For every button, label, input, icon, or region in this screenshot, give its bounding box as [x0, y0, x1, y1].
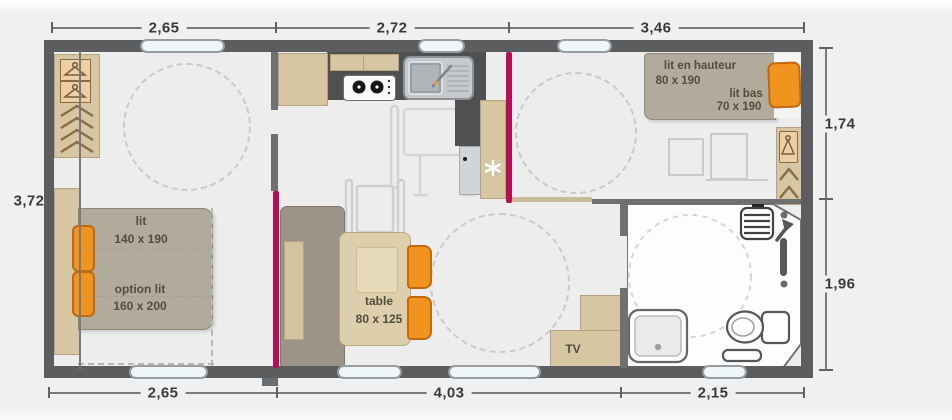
dimension-label: 1,74 [818, 116, 863, 133]
dimension-tick [73, 369, 87, 371]
window [140, 39, 225, 53]
sliding-door [506, 52, 512, 203]
turning-circle-master-bedroom [123, 63, 251, 191]
sofa [280, 206, 345, 370]
chevron-shelf-icon [58, 104, 96, 154]
tv-label: TV [565, 342, 580, 356]
dimension-tick [803, 22, 805, 33]
dimension-label: 2,65 [141, 385, 186, 402]
wall-bathroom [620, 288, 627, 368]
turning-circle-kids-bedroom [515, 72, 637, 194]
desk-and-chair [666, 132, 770, 186]
dimension-tick [276, 387, 278, 398]
sofa-cushion [284, 241, 304, 340]
chair [407, 245, 432, 289]
step-cabinet [580, 295, 622, 332]
bed-fold-line [80, 296, 210, 297]
chevron-shelf-icon [778, 166, 800, 202]
snowflake-icon [484, 159, 502, 177]
cabinet-divider [363, 55, 364, 70]
dimension-label: 4,03 [427, 385, 472, 402]
dimension-label: 1,96 [818, 276, 863, 293]
wall-partition-hall [512, 197, 592, 202]
wardrobe-kids [776, 127, 803, 205]
bunk-top-label: lit en hauteur [664, 60, 736, 72]
turning-circle-living [430, 213, 570, 353]
hanger-icon [779, 131, 798, 163]
radiator-icon [741, 204, 773, 239]
dimension-tick [819, 369, 833, 371]
option-bed-size-label: 160 x 200 [113, 299, 166, 313]
dimension-tick [819, 198, 833, 200]
dimension-tick [51, 22, 53, 33]
pillow-icon [72, 271, 95, 317]
kitchen-tall-cabinet [480, 100, 506, 199]
dimension-label: 2,72 [370, 20, 415, 37]
wall-partition-master [271, 52, 278, 110]
dimension-line-right [825, 48, 827, 370]
option-bed-label: option lit [115, 282, 166, 296]
dimension-tick [803, 387, 805, 398]
table-label: table [365, 294, 393, 308]
dimension-tick [73, 49, 87, 51]
dimension-label: 2,65 [142, 20, 187, 37]
hanger-icon [60, 59, 91, 81]
bed-fold-line [80, 249, 210, 250]
kitchen-cabinet [278, 53, 328, 106]
window [702, 365, 747, 379]
window [557, 39, 612, 53]
wall-right [801, 40, 813, 378]
fridge-handle [463, 157, 467, 161]
dimension-line-left [79, 50, 81, 370]
dimension-tick [48, 387, 50, 398]
chair [407, 296, 432, 340]
wall-partition-master [271, 134, 278, 191]
stove-burners-icon [343, 75, 396, 101]
bed-size-label: 140 x 190 [114, 232, 167, 246]
wardrobe-master [54, 54, 100, 158]
table-runner [356, 247, 398, 293]
sliding-door [273, 191, 279, 368]
dimension-tick [508, 22, 510, 33]
hanger-icon [60, 81, 91, 103]
bed-label: lit [136, 214, 147, 228]
bathroom [627, 204, 801, 368]
dimension-tick [275, 22, 277, 33]
kitchen-sink-icon [403, 56, 474, 100]
dimension-tick [620, 387, 622, 398]
dimension-tick [819, 47, 833, 49]
fridge-icon [459, 146, 482, 195]
kitchen-upper-cabinet [330, 54, 399, 71]
pillow-icon [767, 61, 802, 108]
tv-cabinet [550, 330, 622, 370]
table-size-label: 80 x 125 [356, 312, 403, 326]
window [129, 365, 208, 379]
floor-plan-canvas: lit 140 x 190 option lit 160 x 200 [0, 0, 952, 420]
window [337, 365, 402, 379]
window [418, 39, 465, 53]
wall-bathroom [620, 204, 627, 236]
dimension-label: 3,46 [634, 20, 679, 37]
bunk-top-size-label: 80 x 190 [656, 75, 701, 87]
bunk-bottom-size-label: 70 x 190 [717, 101, 762, 113]
dining-table [339, 232, 411, 346]
dimension-label: 2,15 [691, 385, 736, 402]
wheelchair-icon [344, 178, 406, 236]
option-bed-outline [211, 208, 213, 366]
dimension-label: 3,72 [7, 193, 52, 210]
shower-icon [629, 310, 687, 362]
bunk-bottom-label: lit bas [729, 88, 762, 100]
window [448, 365, 541, 379]
